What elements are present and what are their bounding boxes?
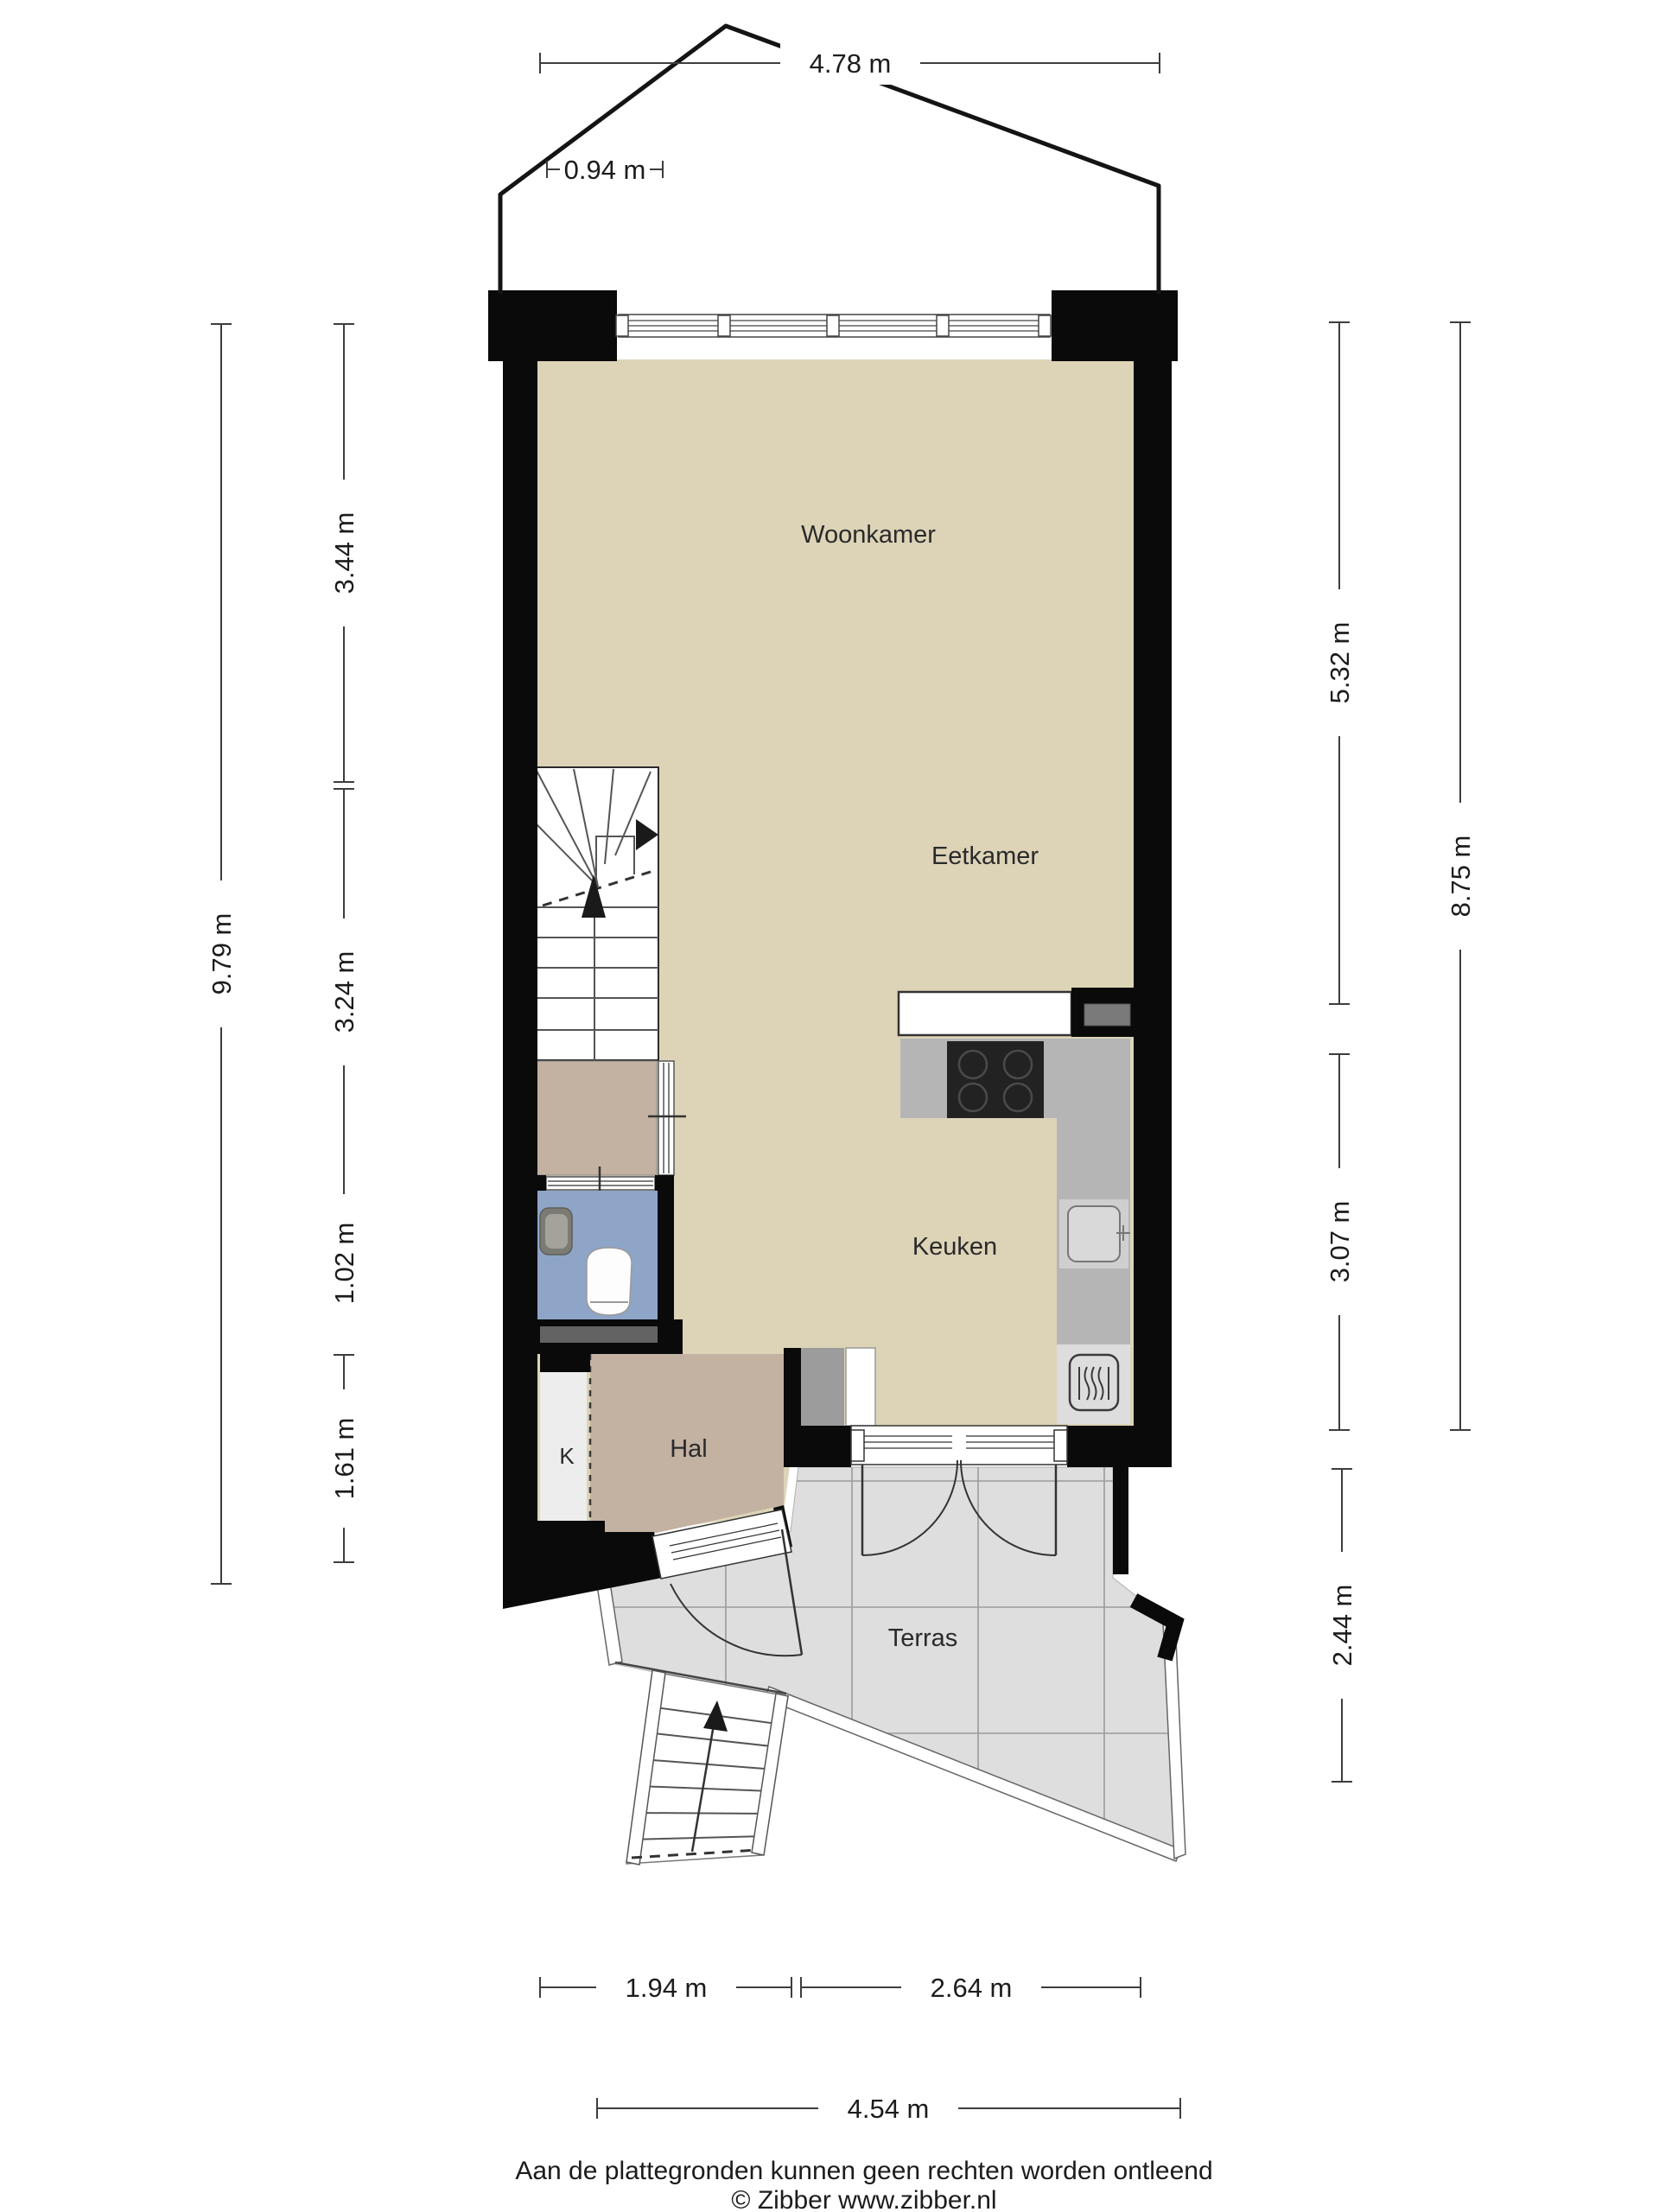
room-label-keuken: Keuken: [912, 1233, 997, 1261]
dim-label-left-seg4: 1.61 m: [329, 1418, 359, 1500]
dim-top-offset: 0.94 m: [547, 155, 663, 185]
dim-label-right-seg1: 5.32 m: [1325, 622, 1355, 704]
dim-left-total: 9.79 m: [201, 324, 241, 1584]
dim-top-width: 4.78 m: [540, 41, 1160, 85]
dim-left-seg4: 1.61 m: [324, 1355, 364, 1562]
dim-label-right-total: 8.75 m: [1446, 836, 1476, 918]
dim-bottom-seg2: 2.64 m: [801, 1967, 1141, 2008]
outdoor-stairs: [626, 1670, 788, 1865]
dim-right-seg2: 3.07 m: [1319, 1054, 1359, 1430]
duct-block: [801, 1348, 844, 1426]
kitchen-island: [899, 992, 1071, 1035]
footer-copyright: © Zibber www.zibber.nl: [731, 2186, 996, 2212]
washbasin-bowl: [545, 1214, 568, 1249]
dim-label-left-seg1: 3.44 m: [329, 512, 359, 594]
footer-disclaimer: Aan de plattegronden kunnen geen rechten…: [515, 2157, 1212, 2185]
room-label-woonkamer: Woonkamer: [801, 521, 936, 549]
dim-bottom-total: 4.54 m: [597, 2088, 1180, 2129]
dim-label-bottom-seg2: 2.64 m: [931, 1973, 1013, 2003]
dim-label-bottom-total: 4.54 m: [848, 2094, 930, 2124]
toilet-icon: [587, 1248, 632, 1315]
room-label-k: K: [559, 1443, 575, 1469]
dim-label-bottom-seg1: 1.94 m: [626, 1973, 708, 2003]
room-label-hal: Hal: [670, 1435, 708, 1463]
dim-label-left-seg3: 1.02 m: [329, 1223, 359, 1305]
dim-label-left-seg2: 3.24 m: [329, 951, 359, 1033]
dim-label-top-width: 4.78 m: [810, 48, 892, 79]
toilet-wall-strip: [540, 1326, 658, 1343]
floorplan-page: 4.78 m 0.94 m 9.79 m 3.4: [0, 0, 1659, 2212]
dim-label-top-offset: 0.94 m: [564, 155, 646, 185]
sink-icon: [1068, 1206, 1120, 1262]
dim-left-seg2: 3.24 m: [324, 789, 364, 1197]
front-window: [616, 292, 1052, 359]
side-panel: [846, 1348, 875, 1426]
dim-right-seg3: 2.44 m: [1322, 1469, 1362, 1782]
indoor-stairs: [531, 767, 658, 1060]
floorplan-canvas: 4.78 m 0.94 m 9.79 m 3.4: [0, 0, 1659, 2212]
dim-left-seg1: 3.44 m: [324, 324, 364, 782]
dim-right-total: 8.75 m: [1440, 322, 1480, 1430]
dim-left-seg3: 1.02 m: [324, 1194, 364, 1332]
dim-bottom-seg1: 1.94 m: [540, 1967, 791, 2008]
dim-label-left-total: 9.79 m: [207, 913, 237, 995]
toilet-room: [537, 1191, 674, 1319]
dim-label-right-seg3: 2.44 m: [1327, 1585, 1357, 1667]
vestibule: [531, 1061, 686, 1203]
dim-right-seg1: 5.32 m: [1319, 322, 1359, 1004]
room-label-eetkamer: Eetkamer: [931, 842, 1039, 870]
chimney-block: [1071, 988, 1169, 1037]
dim-label-right-seg2: 3.07 m: [1325, 1201, 1355, 1283]
room-label-terras: Terras: [888, 1624, 958, 1652]
